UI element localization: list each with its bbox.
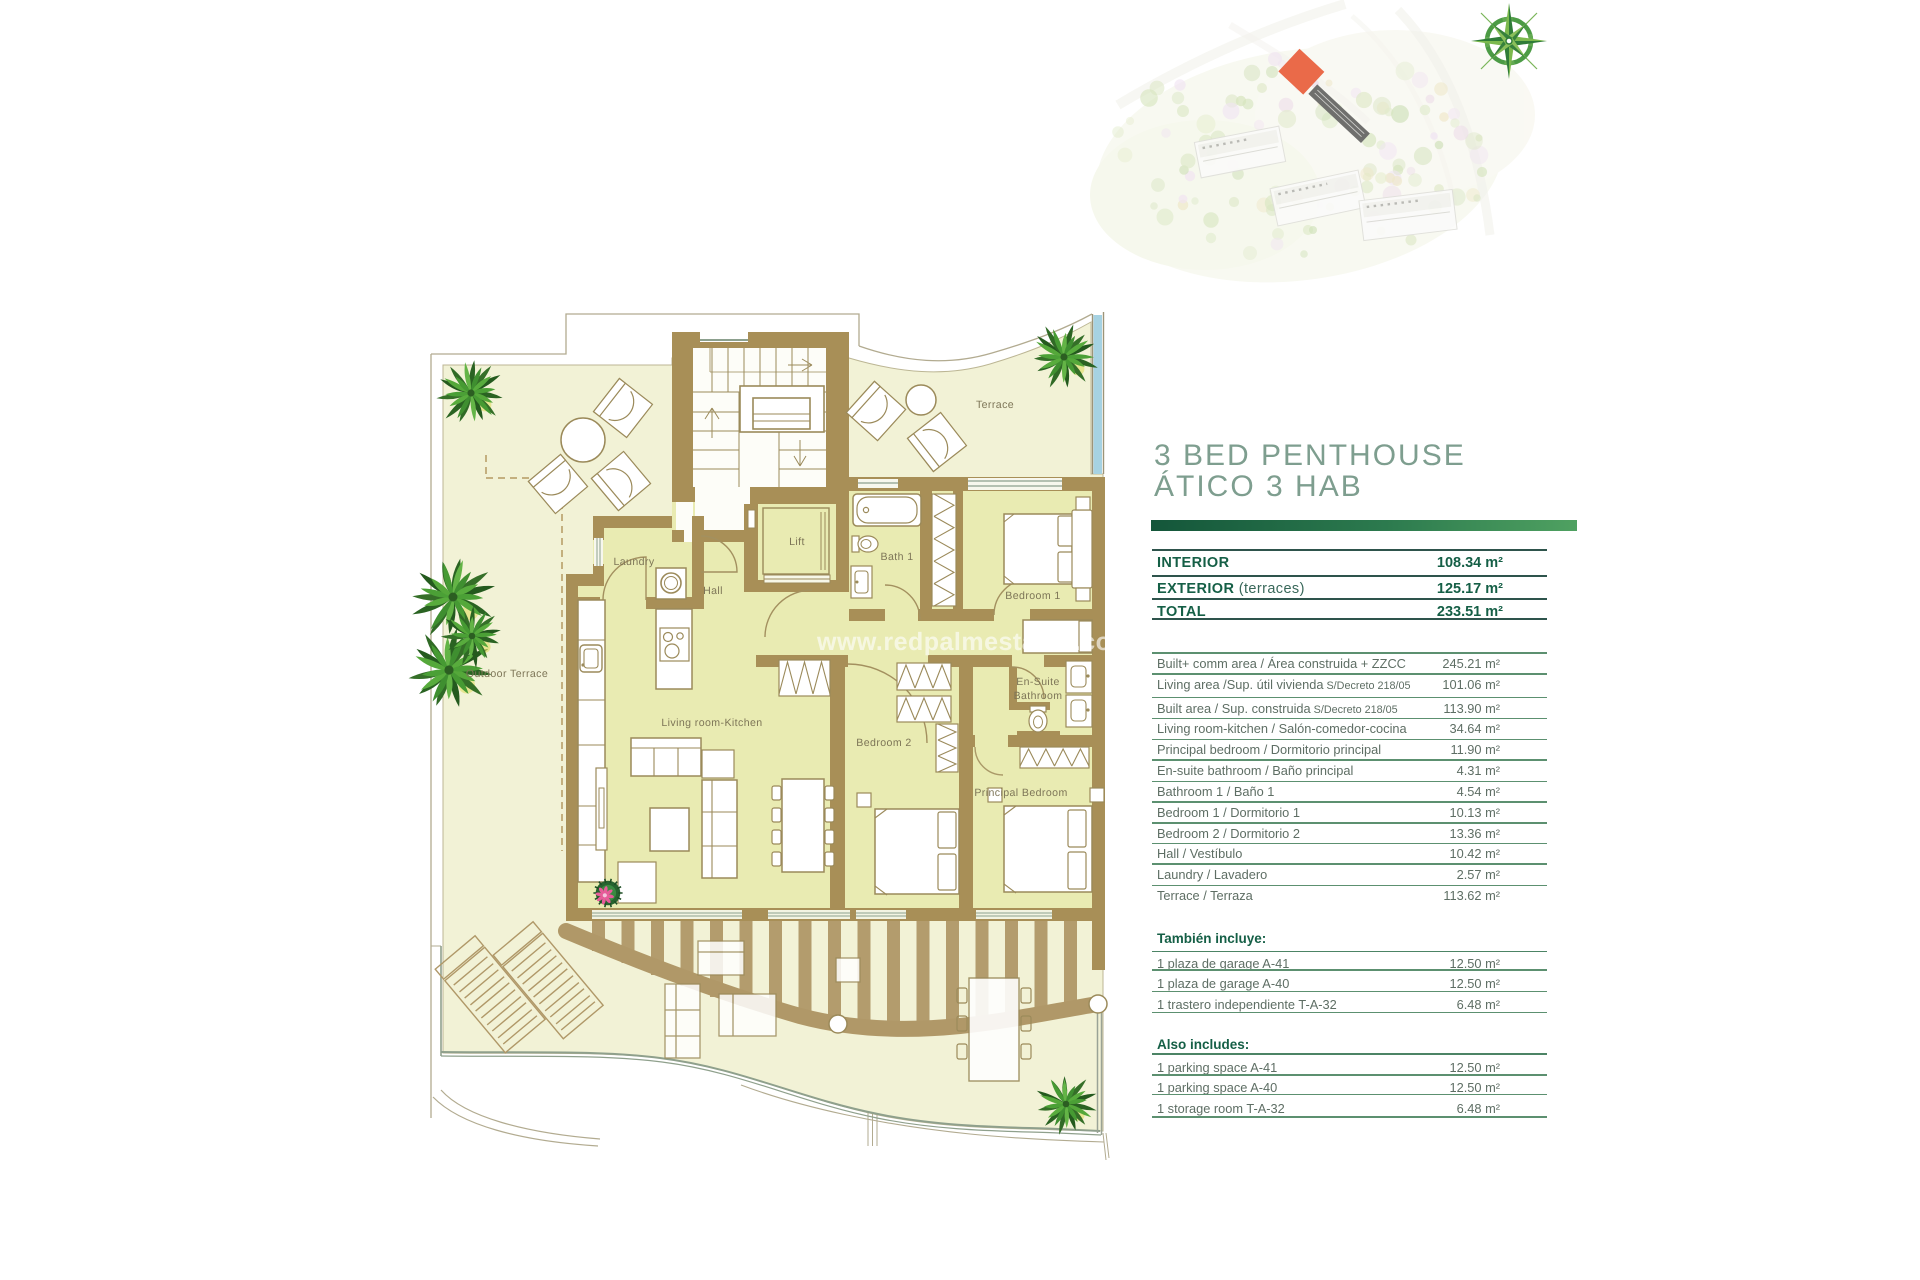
- svg-text:Bathroom: Bathroom: [1014, 690, 1063, 702]
- svg-text:Lift: Lift: [789, 536, 805, 548]
- svg-text:www.redpalmestates.com: www.redpalmestates.com: [816, 628, 1134, 656]
- svg-text:Living room-Kitchen: Living room-Kitchen: [661, 717, 762, 729]
- svg-text:Terrace: Terrace: [976, 399, 1014, 411]
- svg-text:Outdoor Terrace: Outdoor Terrace: [466, 668, 548, 680]
- svg-text:Bath 1: Bath 1: [880, 551, 913, 563]
- svg-text:Hall: Hall: [703, 585, 723, 597]
- svg-text:Bedroom 1: Bedroom 1: [1005, 590, 1060, 602]
- svg-text:Laundry: Laundry: [613, 556, 654, 568]
- svg-text:Bedroom 2: Bedroom 2: [856, 737, 911, 749]
- svg-text:Principal Bedroom: Principal Bedroom: [974, 787, 1067, 799]
- svg-text:En-Suite: En-Suite: [1016, 676, 1059, 688]
